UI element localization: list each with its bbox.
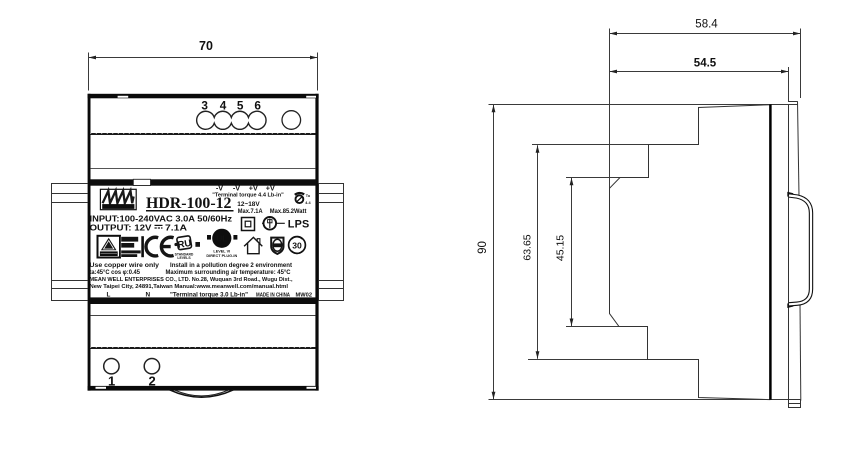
svg-text:Max.7.1A: Max.7.1A [238,208,263,215]
svg-text:RU: RU [177,238,192,251]
svg-text:INPUT:100-240VAC 3.0A 50/60Hz: INPUT:100-240VAC 3.0A 50/60Hz [90,215,233,224]
svg-text:To: To [306,194,311,198]
svg-text:2: 2 [148,374,155,389]
svg-text:"Terminal torque 3.0 Lb-in": "Terminal torque 3.0 Lb-in" [170,293,248,299]
svg-text:ta:45°C cos φ:0.45: ta:45°C cos φ:0.45 [90,270,141,276]
svg-text:+V: +V [266,183,275,192]
svg-text:5: 5 [237,98,244,112]
svg-text:30: 30 [292,240,302,250]
svg-text:63.65: 63.65 [521,234,533,260]
svg-text:+V: +V [249,183,258,192]
svg-text:45.15: 45.15 [554,235,566,261]
svg-text:MEAN WELL ENTERPRISES CO., LTD: MEAN WELL ENTERPRISES CO., LTD. No.28, W… [90,277,293,283]
svg-text:MADE IN CHINA: MADE IN CHINA [256,293,290,299]
svg-text:54.5: 54.5 [694,58,717,70]
svg-text:6: 6 [254,98,261,112]
svg-text:L: L [107,292,111,299]
svg-text:"Terminal torque 4.4 Lb-in": "Terminal torque 4.4 Lb-in" [212,192,284,198]
svg-text:70: 70 [199,39,213,53]
svg-text:7.1A: 7.1A [165,224,187,233]
svg-text:90: 90 [477,241,489,254]
svg-text:MW02: MW02 [296,293,313,299]
svg-text:Maximum surrounding air temper: Maximum surrounding air temperature: 45°… [166,268,291,276]
svg-text:MEAN WELL: MEAN WELL [104,205,134,209]
svg-text:4.4: 4.4 [305,201,311,205]
svg-text:-V: -V [216,183,223,192]
svg-text:LPS: LPS [288,218,310,230]
svg-text:1: 1 [108,374,115,389]
svg-text:Install in a pollution degree: Install in a pollution degree 2 environm… [170,262,293,269]
svg-text:Max.85.2Watt: Max.85.2Watt [270,208,307,215]
svg-text:-V: -V [233,183,240,192]
svg-text:58.4: 58.4 [695,19,718,31]
svg-text:DIRECT PLUG-IN: DIRECT PLUG-IN [206,254,237,258]
svg-text:LEVELS: LEVELS [177,256,191,260]
svg-text:N: N [146,292,151,299]
svg-text:3: 3 [201,98,208,112]
svg-text:Use copper wire only: Use copper wire only [90,262,160,269]
svg-text:UL: UL [216,234,227,244]
svg-text:New Taipei City, 24891,Taiwan: New Taipei City, 24891,Taiwan Manual:www… [90,284,289,290]
svg-text:4: 4 [220,98,227,112]
svg-text:12~18V: 12~18V [237,201,260,208]
svg-text:OUTPUT: 12V: OUTPUT: 12V [90,224,153,233]
